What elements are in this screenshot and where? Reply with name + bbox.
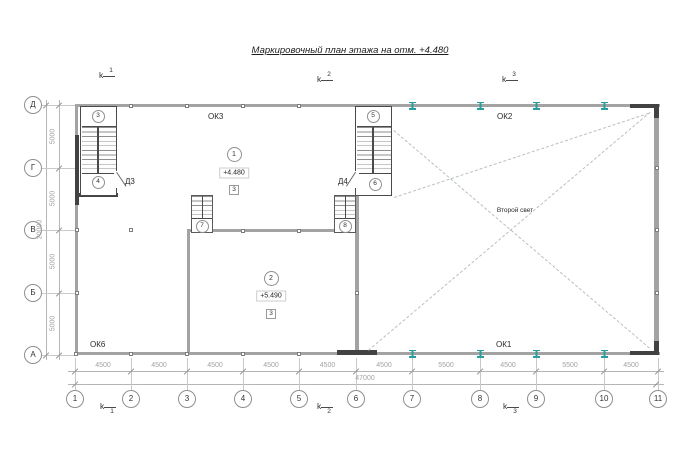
axis-extension-line xyxy=(75,358,76,390)
section-mark-number: 2 xyxy=(321,407,333,416)
dimension-label: 5000 xyxy=(50,185,57,213)
column-marker xyxy=(241,104,245,108)
column-marker xyxy=(655,228,659,232)
dimension-label: 4500 xyxy=(494,362,522,369)
stair-mark-bubble: 5 xyxy=(367,110,380,123)
column-marker xyxy=(185,104,189,108)
dimension-line-bottom-spans xyxy=(68,371,664,372)
stair-flight xyxy=(357,127,391,173)
window-label-ok6: ОК6 xyxy=(90,341,105,349)
dimension-label: 5000 xyxy=(50,247,57,275)
column-axis-bubble: 10 xyxy=(595,390,613,408)
column-axis-bubble: 2 xyxy=(122,390,140,408)
stair-mark-bubble: 8 xyxy=(339,220,352,233)
stair-mark-bubble: 7 xyxy=(196,220,209,233)
axis-extension-line xyxy=(658,358,659,390)
column-axis-bubble: 8 xyxy=(471,390,489,408)
window-label-ok2: ОК2 xyxy=(497,113,512,121)
section-mark-k2-top: k2 xyxy=(317,72,333,84)
second-light-diagonal xyxy=(368,112,650,351)
steel-column-icon xyxy=(409,102,416,110)
column-axis-bubble: 9 xyxy=(527,390,545,408)
dimension-total-label: 47000 xyxy=(351,375,379,382)
floor-plan-canvas: Маркировочный план этажа на отм. +4.480 … xyxy=(0,0,700,474)
steel-column-icon xyxy=(409,350,416,358)
dimension-label: 4500 xyxy=(314,362,342,369)
dimension-label: 4500 xyxy=(370,362,398,369)
wall-inner-left xyxy=(187,229,190,353)
axis-extension-line xyxy=(412,358,413,390)
stair-divider xyxy=(372,126,374,173)
axis-extension-line xyxy=(356,358,357,390)
steel-column-icon xyxy=(601,350,608,358)
section-mark-k3-bottom: k3 xyxy=(503,402,519,416)
dimension-label: 5500 xyxy=(556,362,584,369)
second-light-diagonal xyxy=(393,130,650,349)
room-number-bubble: 2 xyxy=(264,271,279,286)
column-marker xyxy=(655,291,659,295)
row-axis-bubble: Д xyxy=(24,96,42,114)
second-light-diagonal xyxy=(394,113,649,198)
stair-landing-line xyxy=(357,126,391,127)
wall-dark-topright-v xyxy=(654,104,659,118)
stair-landing-line xyxy=(82,126,116,127)
column-axis-bubble: 7 xyxy=(403,390,421,408)
drawing-title: Маркировочный план этажа на отм. +4.480 xyxy=(252,46,449,56)
section-mark-number: 1 xyxy=(103,68,115,77)
stair-mark-bubble: 4 xyxy=(92,176,105,189)
steel-column-icon xyxy=(533,350,540,358)
section-mark-number: 1 xyxy=(104,407,116,416)
row-axis-bubble: А xyxy=(24,346,42,364)
stair-divider xyxy=(202,196,203,218)
section-mark-number: 3 xyxy=(507,407,519,416)
steel-column-icon xyxy=(477,102,484,110)
elevation-label: +5.490 xyxy=(256,291,286,302)
column-marker xyxy=(185,352,189,356)
dimension-total-label: 20000 xyxy=(37,216,44,244)
column-axis-bubble: 3 xyxy=(178,390,196,408)
column-marker xyxy=(75,228,79,232)
room-type-box: 3 xyxy=(229,185,239,195)
window-label-ok1: ОК1 xyxy=(496,341,511,349)
column-marker xyxy=(355,291,359,295)
column-axis-bubble: 4 xyxy=(234,390,252,408)
second-light-label: Второй свет xyxy=(485,208,545,215)
axis-extension-line xyxy=(299,358,300,390)
axis-extension-line xyxy=(243,358,244,390)
dimension-label: 5000 xyxy=(50,122,57,150)
column-marker xyxy=(297,104,301,108)
room-type-box: 3 xyxy=(266,309,276,319)
dimension-label: 4500 xyxy=(89,362,117,369)
section-mark-number: 2 xyxy=(321,72,333,81)
stair-landing-line xyxy=(192,218,212,219)
dimension-label: 4500 xyxy=(617,362,645,369)
elevation-label: +4.480 xyxy=(219,168,249,179)
dimension-label: 5000 xyxy=(50,310,57,338)
steel-column-icon xyxy=(533,102,540,110)
stair-mark-bubble: 6 xyxy=(369,178,382,191)
column-marker xyxy=(129,228,133,232)
wall-dark-bottomright-v xyxy=(654,341,659,355)
stair-mark-bubble: 3 xyxy=(92,110,105,123)
column-marker xyxy=(241,352,245,356)
window-label-ok3: ОК3 xyxy=(208,113,223,121)
column-marker xyxy=(129,104,133,108)
dimension-label: 4500 xyxy=(145,362,173,369)
column-marker xyxy=(74,352,78,356)
axis-extension-line xyxy=(536,358,537,390)
column-axis-bubble: 11 xyxy=(649,390,667,408)
dimension-label: 5500 xyxy=(432,362,460,369)
row-axis-bubble: Г xyxy=(24,159,42,177)
dimension-label: 4500 xyxy=(257,362,285,369)
section-mark-k1-top: k1 xyxy=(99,68,115,80)
column-marker xyxy=(655,166,659,170)
section-mark-number: 3 xyxy=(506,72,518,81)
stair-landing-line xyxy=(335,218,355,219)
room-number-bubble: 1 xyxy=(227,147,242,162)
column-axis-bubble: 6 xyxy=(347,390,365,408)
dimension-label: 4500 xyxy=(201,362,229,369)
row-axis-bubble: Б xyxy=(24,284,42,302)
axis-extension-line xyxy=(187,358,188,390)
column-marker xyxy=(297,352,301,356)
door-label-d4: Д4 xyxy=(338,178,348,186)
stair-divider xyxy=(97,126,99,173)
steel-column-icon xyxy=(477,350,484,358)
column-marker xyxy=(75,291,79,295)
column-axis-bubble: 5 xyxy=(290,390,308,408)
wall-dark-axis6 xyxy=(337,350,377,355)
column-marker xyxy=(297,229,301,233)
column-marker xyxy=(241,229,245,233)
stair-landing-line xyxy=(82,173,116,174)
stair-divider xyxy=(345,196,346,218)
door-label-d3: Д3 xyxy=(125,178,135,186)
axis-extension-line xyxy=(131,358,132,390)
stair-landing-line xyxy=(357,173,391,174)
stair-flight xyxy=(82,127,116,173)
section-mark-k1-bottom: k1 xyxy=(100,402,116,416)
column-marker xyxy=(129,352,133,356)
section-mark-k3-top: k3 xyxy=(502,72,518,84)
dimension-line-bottom-total xyxy=(68,384,664,385)
steel-column-icon xyxy=(601,102,608,110)
column-axis-bubble: 1 xyxy=(66,390,84,408)
section-mark-k2-bottom: k2 xyxy=(317,402,333,416)
axis-extension-line xyxy=(480,358,481,390)
axis-extension-line xyxy=(604,358,605,390)
